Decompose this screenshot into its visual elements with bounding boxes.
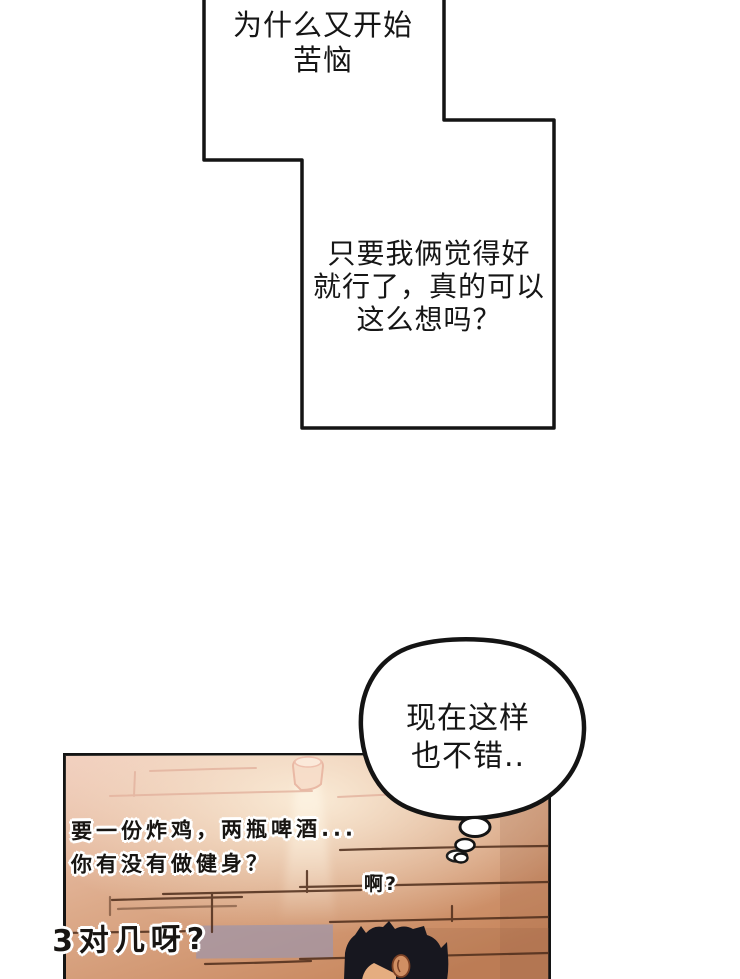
speech-line: 只要我俩觉得好 xyxy=(303,237,555,270)
purple-plank xyxy=(196,924,333,958)
speech-line: 就行了，真的可以 xyxy=(303,270,555,303)
speech-line: 这么想吗？ xyxy=(303,303,555,336)
thought-bubble-text: 现在这样 也不错.. xyxy=(355,700,581,776)
speech-line: 为什么又开始 xyxy=(203,8,443,43)
comic-page: 为什么又开始 苦恼 只要我俩觉得好 就行了，真的可以 这么想吗？ 现在这样 也不… xyxy=(0,0,740,979)
character-ear xyxy=(393,955,410,977)
wall-lamp-icon xyxy=(293,757,323,790)
offscreen-dialogue-line1: 要一份炸鸡，两瓶啤酒... xyxy=(71,813,357,846)
offscreen-dialogue-line2: 你有没有做健身？ xyxy=(71,847,271,878)
reply-text: 啊? xyxy=(364,869,398,896)
speech-bubble-question-text: 只要我俩觉得好 就行了，真的可以 这么想吗？ xyxy=(303,237,555,336)
speech-bubble-top-text: 为什么又开始 苦恼 xyxy=(203,8,443,78)
shout-text: 3对几呀? xyxy=(52,914,211,960)
thought-line: 也不错.. xyxy=(355,738,581,776)
thought-line: 现在这样 xyxy=(355,700,581,738)
speech-line: 苦恼 xyxy=(203,43,443,78)
